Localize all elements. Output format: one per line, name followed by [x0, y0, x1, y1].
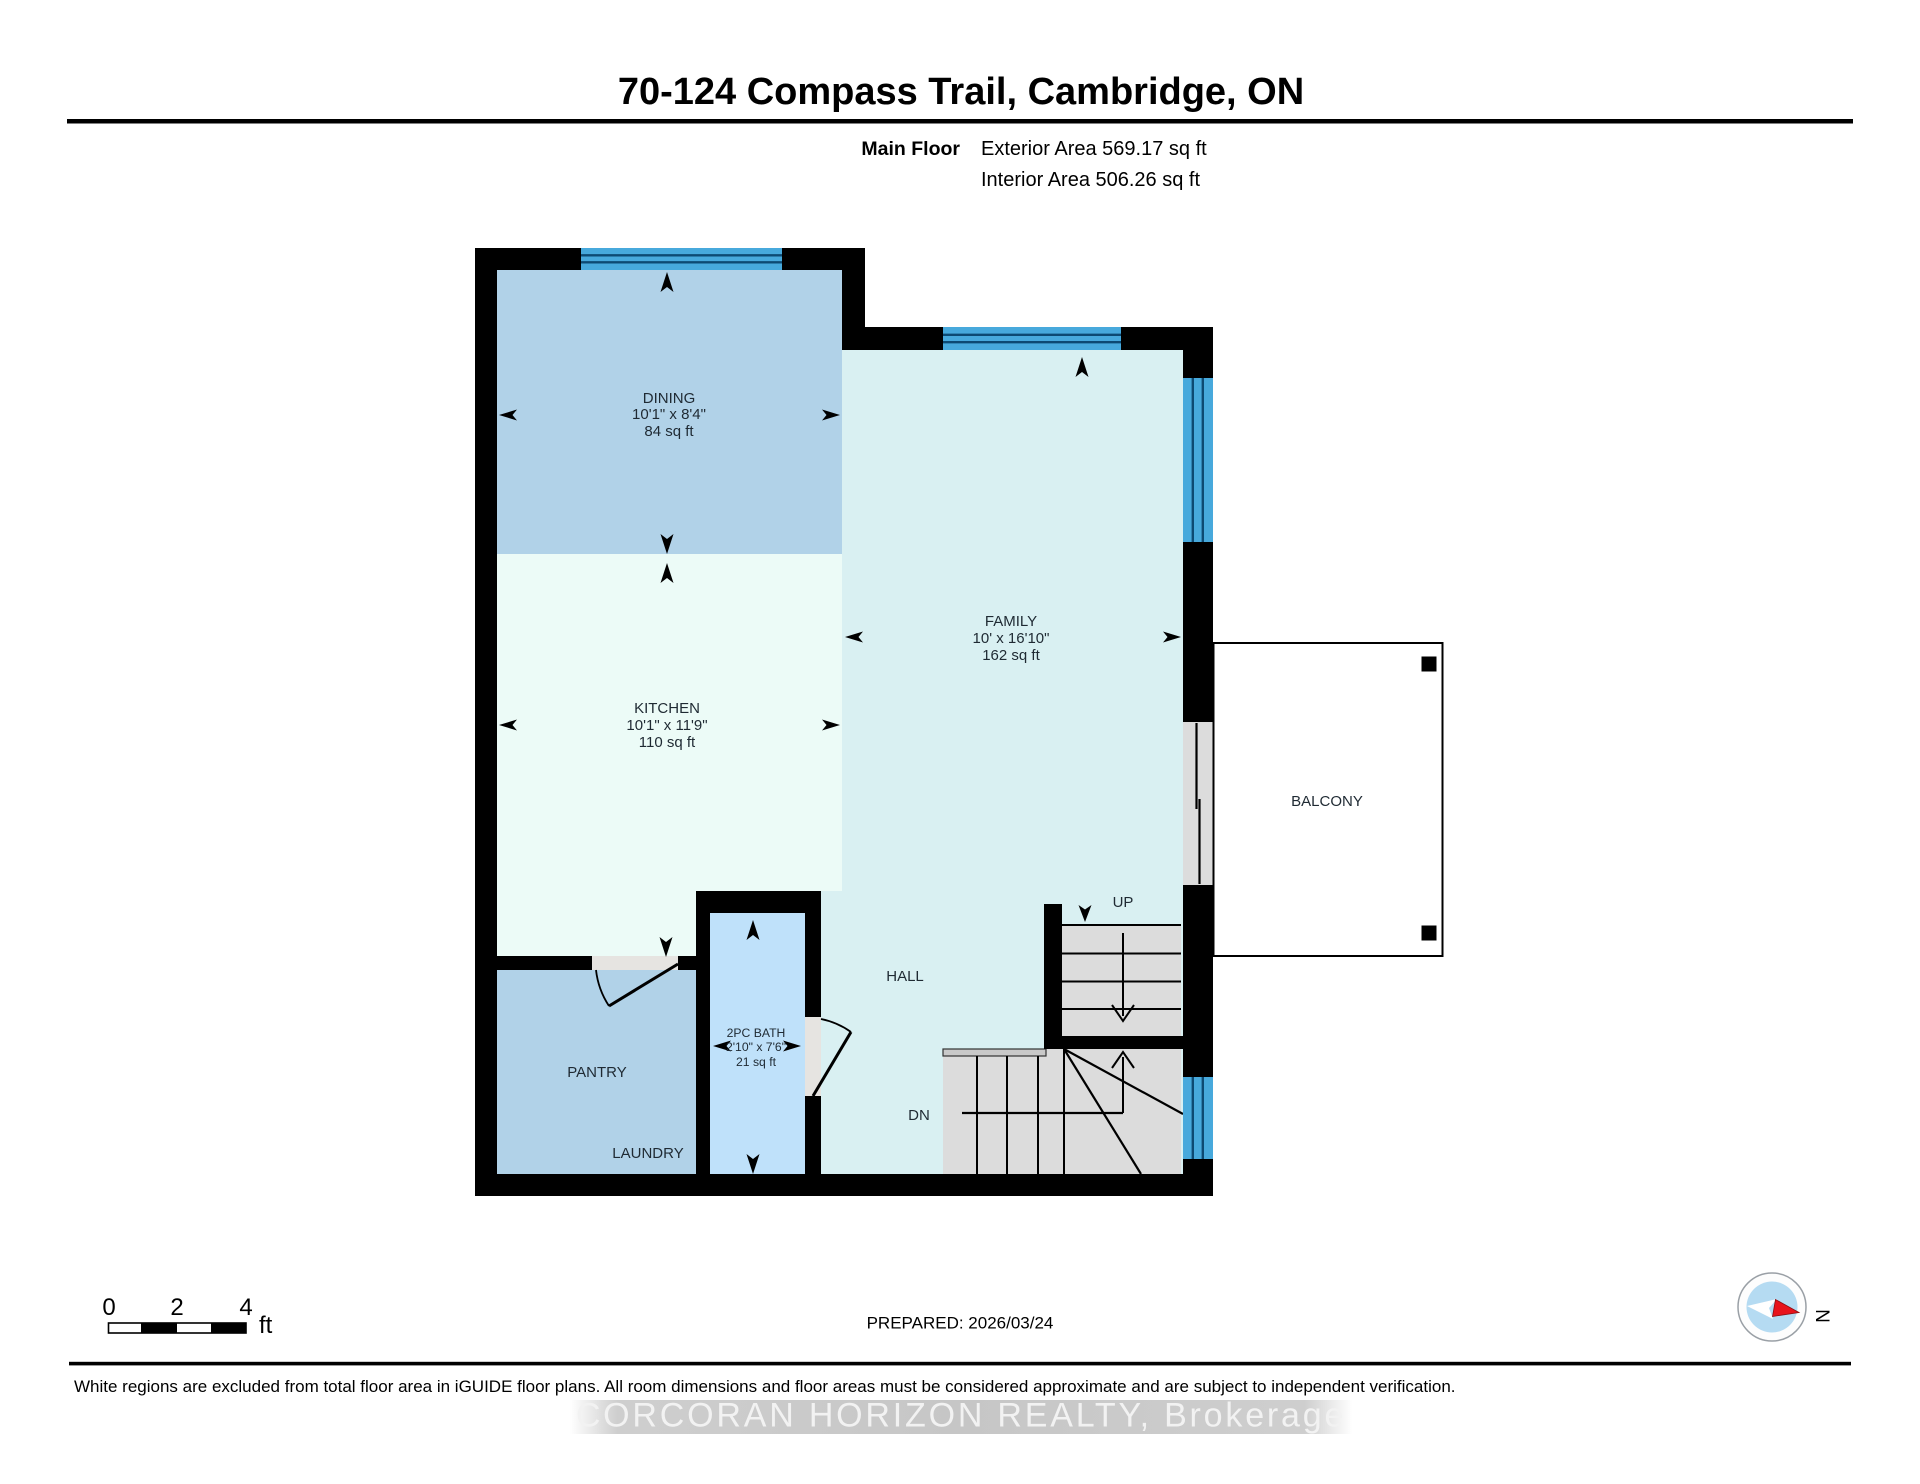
svg-text:Interior Area 506.26 sq ft: Interior Area 506.26 sq ft: [981, 169, 1200, 191]
svg-text:FAMILY: FAMILY: [985, 613, 1037, 630]
svg-text:DN: DN: [908, 1107, 930, 1124]
svg-text:UP: UP: [1113, 894, 1134, 911]
svg-text:10'1" x 8'4": 10'1" x 8'4": [632, 406, 706, 423]
svg-text:84 sq ft: 84 sq ft: [644, 423, 694, 440]
svg-text:LAUNDRY: LAUNDRY: [612, 1145, 683, 1162]
svg-text:White regions are excluded fro: White regions are excluded from total fl…: [74, 1377, 1456, 1396]
svg-text:Main Floor: Main Floor: [861, 138, 960, 160]
svg-text:110 sq ft: 110 sq ft: [639, 734, 696, 751]
svg-text:CORCORAN HORIZON REALTY, Broke: CORCORAN HORIZON REALTY, Brokerage: [576, 1397, 1346, 1435]
svg-text:10' x 16'10": 10' x 16'10": [973, 630, 1050, 647]
svg-text:2'10" x 7'6": 2'10" x 7'6": [726, 1040, 786, 1054]
svg-text:2: 2: [170, 1294, 183, 1321]
svg-text:Exterior Area 569.17 sq ft: Exterior Area 569.17 sq ft: [981, 138, 1207, 160]
svg-text:70-124 Compass Trail, Cambridg: 70-124 Compass Trail, Cambridge, ON: [618, 71, 1304, 113]
svg-text:BALCONY: BALCONY: [1291, 793, 1363, 810]
svg-text:ft: ft: [259, 1312, 273, 1339]
svg-text:2PC BATH: 2PC BATH: [727, 1026, 786, 1040]
svg-text:0: 0: [102, 1294, 115, 1321]
svg-text:162 sq ft: 162 sq ft: [982, 647, 1040, 664]
svg-text:DINING: DINING: [643, 390, 696, 407]
svg-text:PREPARED: 2026/03/24: PREPARED: 2026/03/24: [867, 1314, 1054, 1333]
svg-text:10'1" x 11'9": 10'1" x 11'9": [626, 717, 707, 734]
svg-text:21 sq ft: 21 sq ft: [736, 1055, 777, 1069]
svg-text:KITCHEN: KITCHEN: [634, 700, 700, 717]
svg-text:PANTRY: PANTRY: [567, 1064, 626, 1081]
svg-text:HALL: HALL: [886, 968, 924, 985]
svg-text:4: 4: [239, 1294, 252, 1321]
svg-text:N: N: [1811, 1309, 1832, 1323]
